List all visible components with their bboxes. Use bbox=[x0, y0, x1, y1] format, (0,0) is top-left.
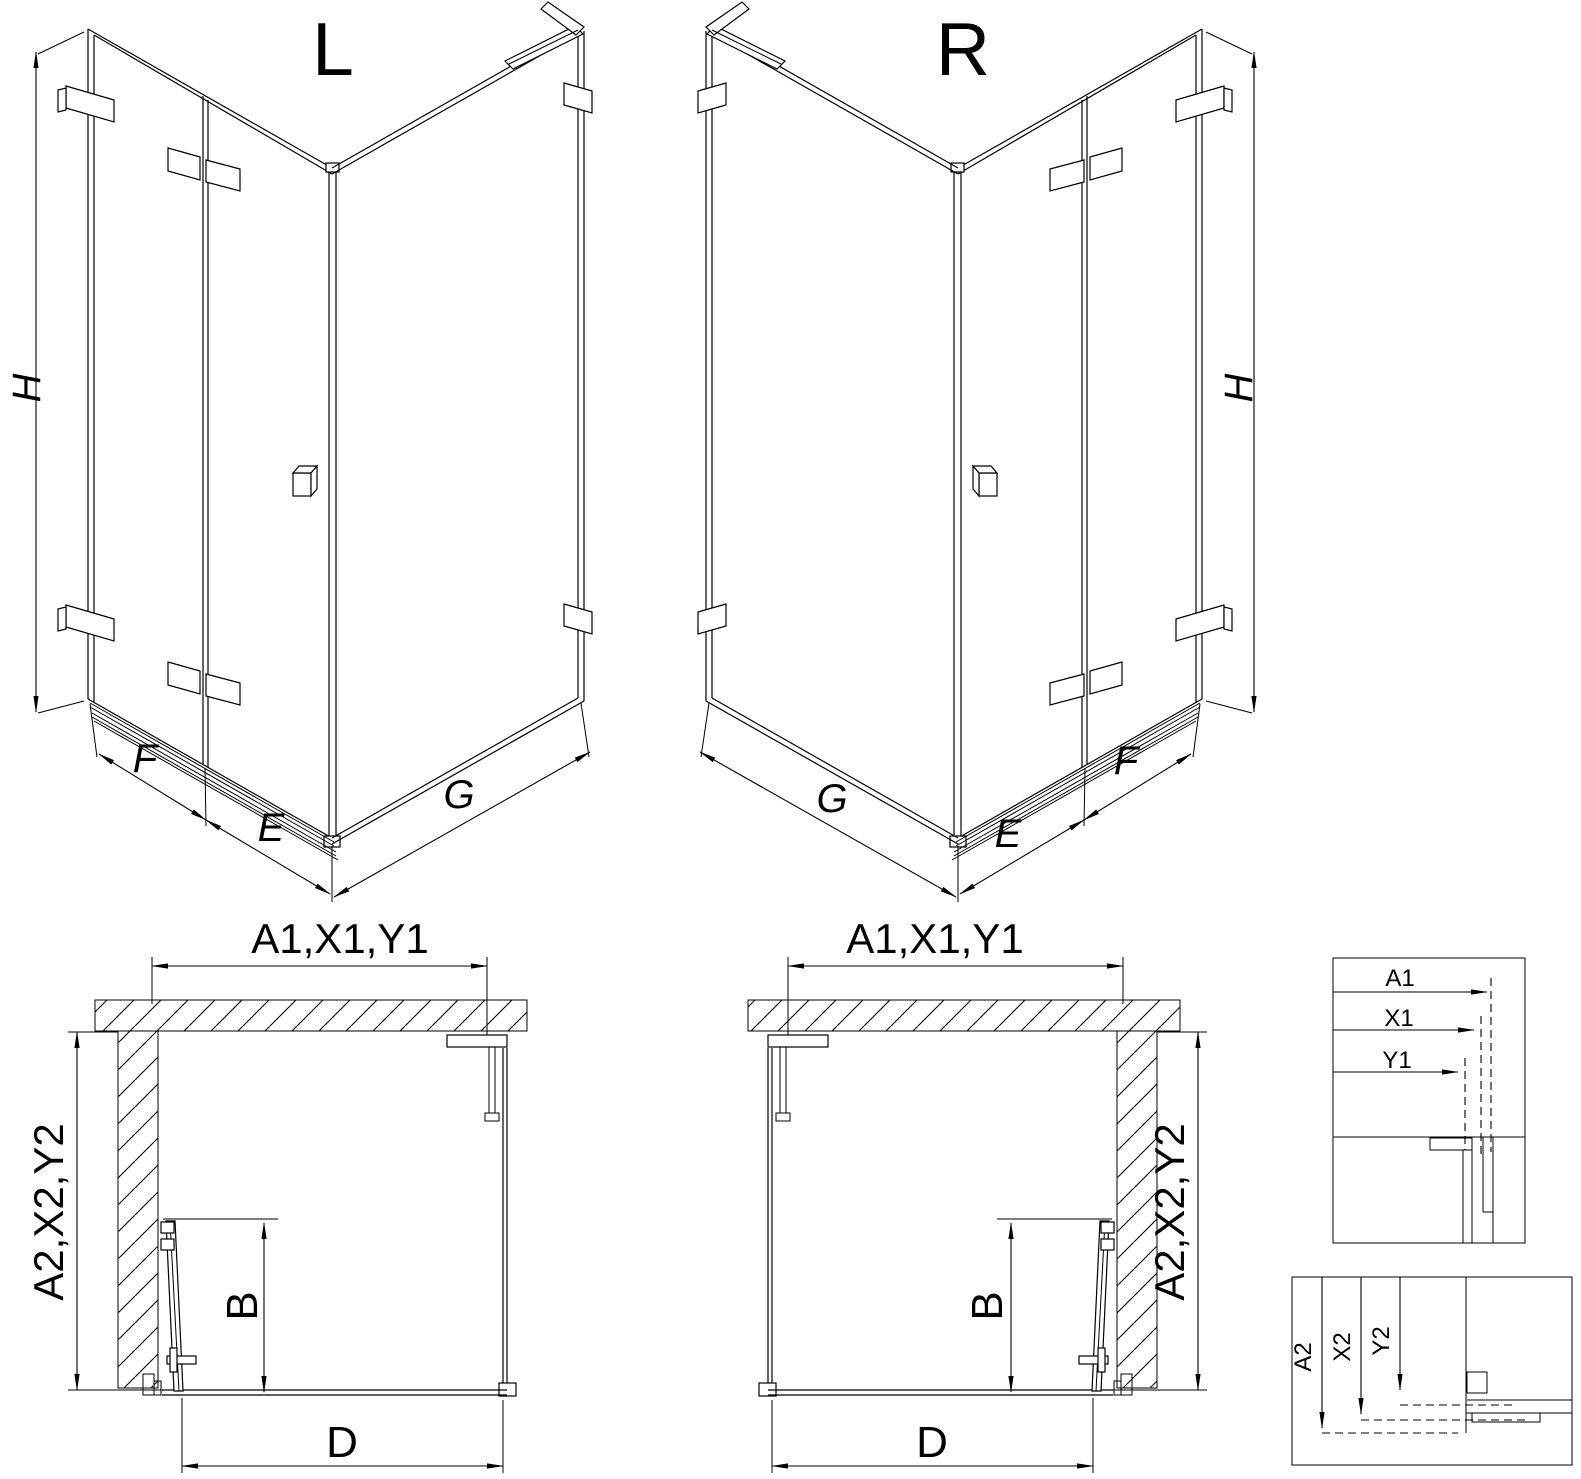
plan-width-label-left: A1,X1,Y1 bbox=[251, 915, 428, 962]
fixed-panel-label-right: F bbox=[1114, 739, 1141, 783]
door-wall-glass bbox=[88, 29, 332, 838]
plan-side-label-left: D bbox=[326, 1418, 358, 1467]
plan-fixed-glass bbox=[447, 1035, 516, 1396]
variant-title-right: R bbox=[936, 7, 990, 91]
bottom-dimensions bbox=[90, 703, 590, 902]
wall-profile-detail bbox=[1430, 1137, 1493, 1243]
detail-box-depth-dims bbox=[1292, 1277, 1572, 1465]
plan-side-label-right: D bbox=[916, 1418, 948, 1467]
fold-hinge-bottom bbox=[168, 662, 240, 705]
detail-label-x1: X1 bbox=[1384, 1005, 1413, 1032]
iso-view-left-geometry bbox=[36, 2, 592, 902]
side-wall-label-left: G bbox=[443, 773, 474, 817]
wall-profile-detail-2 bbox=[1466, 1372, 1572, 1422]
plan-entry-label-right: B bbox=[963, 1291, 1012, 1320]
plan-door-wall-edge bbox=[143, 1374, 507, 1395]
fold-hinge-top bbox=[168, 148, 240, 191]
height-label-left: H bbox=[5, 373, 49, 402]
plan-left-top-wall-hatch bbox=[95, 1000, 527, 1031]
plan-right-top-wall-hatch bbox=[748, 1000, 1180, 1031]
side-wall-label-right: G bbox=[816, 777, 847, 821]
variant-title-left: L bbox=[312, 7, 354, 91]
wall-hinge-bottom bbox=[58, 605, 114, 641]
fixed-panel-label-left: F bbox=[133, 737, 160, 781]
detail-label-x2: X2 bbox=[1329, 1332, 1356, 1361]
wall-bracket-top bbox=[564, 83, 592, 113]
iso-view-right-geometry bbox=[698, 2, 1254, 902]
side-wall-glass bbox=[332, 28, 584, 844]
detail-label-a2: A2 bbox=[1290, 1342, 1317, 1371]
top-support-bar bbox=[505, 2, 584, 69]
detail-label-y1: Y1 bbox=[1382, 1047, 1411, 1074]
plan-open-door bbox=[161, 1221, 196, 1391]
corner-profile bbox=[324, 163, 340, 847]
wall-hinge-top bbox=[58, 86, 114, 122]
plan-entry-label-left: B bbox=[218, 1291, 267, 1320]
drawing-canvas: L R H F E G H G E F A1,X1,Y1 A2,X2,Y2 B … bbox=[0, 0, 1581, 1479]
plan-left-side-wall-hatch bbox=[118, 1031, 158, 1388]
door-panel-label-right: E bbox=[995, 812, 1023, 856]
plan-width-label-right: A1,X1,Y1 bbox=[846, 915, 1023, 962]
detail-label-y2: Y2 bbox=[1368, 1326, 1395, 1355]
threshold-rail bbox=[90, 703, 338, 860]
plan-depth-label-right: A2,X2,Y2 bbox=[1146, 1123, 1193, 1300]
height-label-right: H bbox=[1217, 373, 1261, 402]
wall-bracket-bottom bbox=[564, 604, 592, 634]
detail-box-width-dims bbox=[1333, 958, 1525, 1243]
plan-depth-label-left: A2,X2,Y2 bbox=[25, 1123, 72, 1300]
shower-enclosure-technical-drawing: L R H F E G H G E F A1,X1,Y1 A2,X2,Y2 B … bbox=[0, 0, 1581, 1479]
door-knob bbox=[293, 466, 317, 496]
detail-label-a1: A1 bbox=[1385, 965, 1414, 992]
door-panel-label-left: E bbox=[258, 806, 286, 850]
